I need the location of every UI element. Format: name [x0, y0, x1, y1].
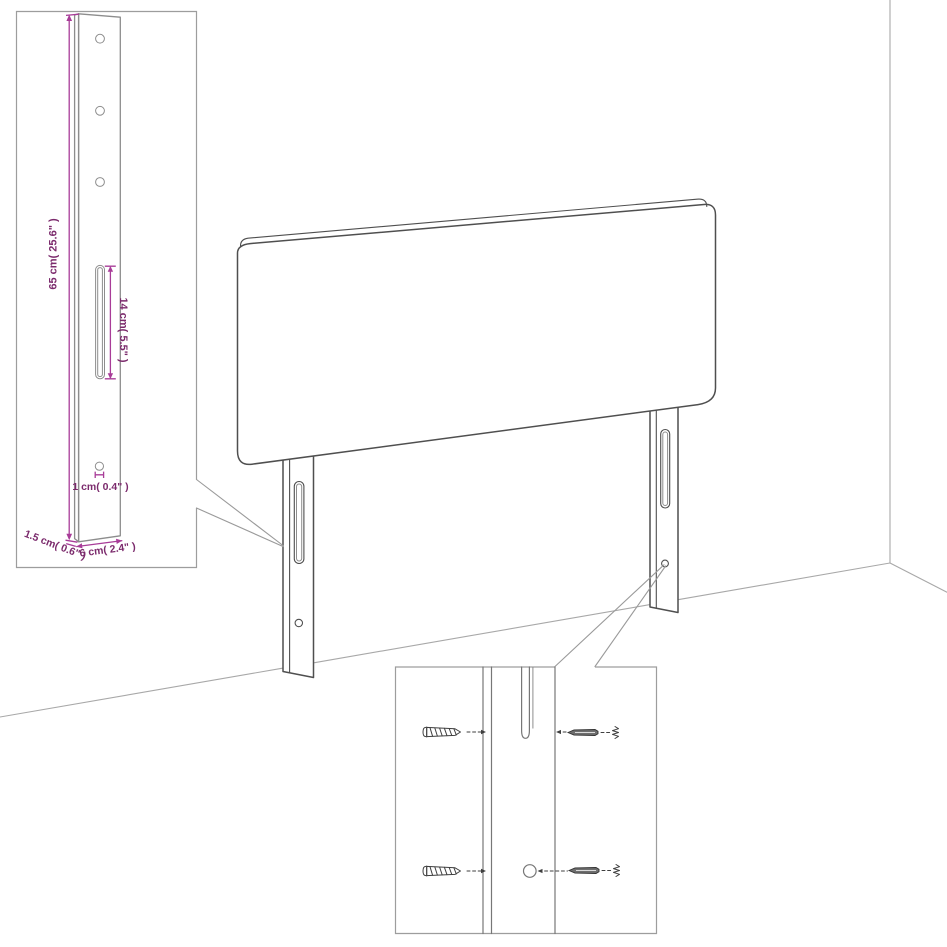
wall-plug-icon — [568, 727, 619, 739]
dimension-side-thickness-label: 1.5 cm( 0.6" ) — [23, 528, 88, 563]
strip-hole — [524, 865, 537, 878]
floor-line-left — [0, 563, 890, 717]
leg-detail-inset: 65 cm( 25.6" ) 14 cm( 5.5" ) 1 cm( 0.4" … — [17, 12, 197, 568]
dimension-width: 6 cm( 2.4" ) — [76, 539, 136, 560]
hardware-inset-border — [396, 667, 657, 934]
dimension-height-label: 65 cm( 25.6" ) — [48, 218, 60, 290]
bottom-inset-leader-lines — [555, 565, 666, 667]
left-leg-slot — [294, 482, 304, 564]
inset-leg-slot-inner — [98, 268, 103, 377]
panel-front-face — [238, 204, 716, 464]
dimension-slot: 14 cm( 5.5" ) — [105, 266, 129, 379]
inset-leg-slot — [96, 265, 105, 378]
dimension-slot-label: 14 cm( 5.5" ) — [117, 297, 129, 362]
inset-leader-lines — [197, 480, 666, 667]
strip-slot — [522, 667, 530, 738]
headboard-assembly-diagram: 65 cm( 25.6" ) 14 cm( 5.5" ) 1 cm( 0.4" … — [0, 0, 947, 947]
left-leg-hole — [295, 619, 302, 626]
dimension-side-thickness: 1.5 cm( 0.6" ) — [23, 528, 88, 563]
plug-connector-lines — [538, 730, 568, 873]
right-leg-slot — [661, 430, 670, 509]
headboard-right-leg — [650, 399, 678, 613]
inset-leg-hole-3 — [96, 178, 105, 187]
screw-icon — [423, 866, 486, 876]
inset-leg-hole-1 — [96, 34, 105, 43]
inset-leg-small-hole — [95, 462, 103, 470]
headboard-left-leg — [283, 446, 314, 678]
headboard-panel — [238, 199, 716, 464]
screw-icon — [423, 727, 486, 737]
inset-leg-strip — [483, 667, 555, 934]
hardware-detail-inset — [396, 667, 657, 934]
floor-line-right — [890, 563, 947, 592]
dimension-hole-label: 1 cm( 0.4" ) — [72, 481, 128, 493]
dimension-width-label: 6 cm( 2.4" ) — [79, 540, 136, 559]
left-inset-leader-lines — [197, 480, 284, 547]
inset-leg-hole-2 — [96, 106, 105, 115]
diagram-canvas: 65 cm( 25.6" ) 14 cm( 5.5" ) 1 cm( 0.4" … — [0, 0, 947, 947]
wall-plug-icon — [569, 865, 620, 877]
